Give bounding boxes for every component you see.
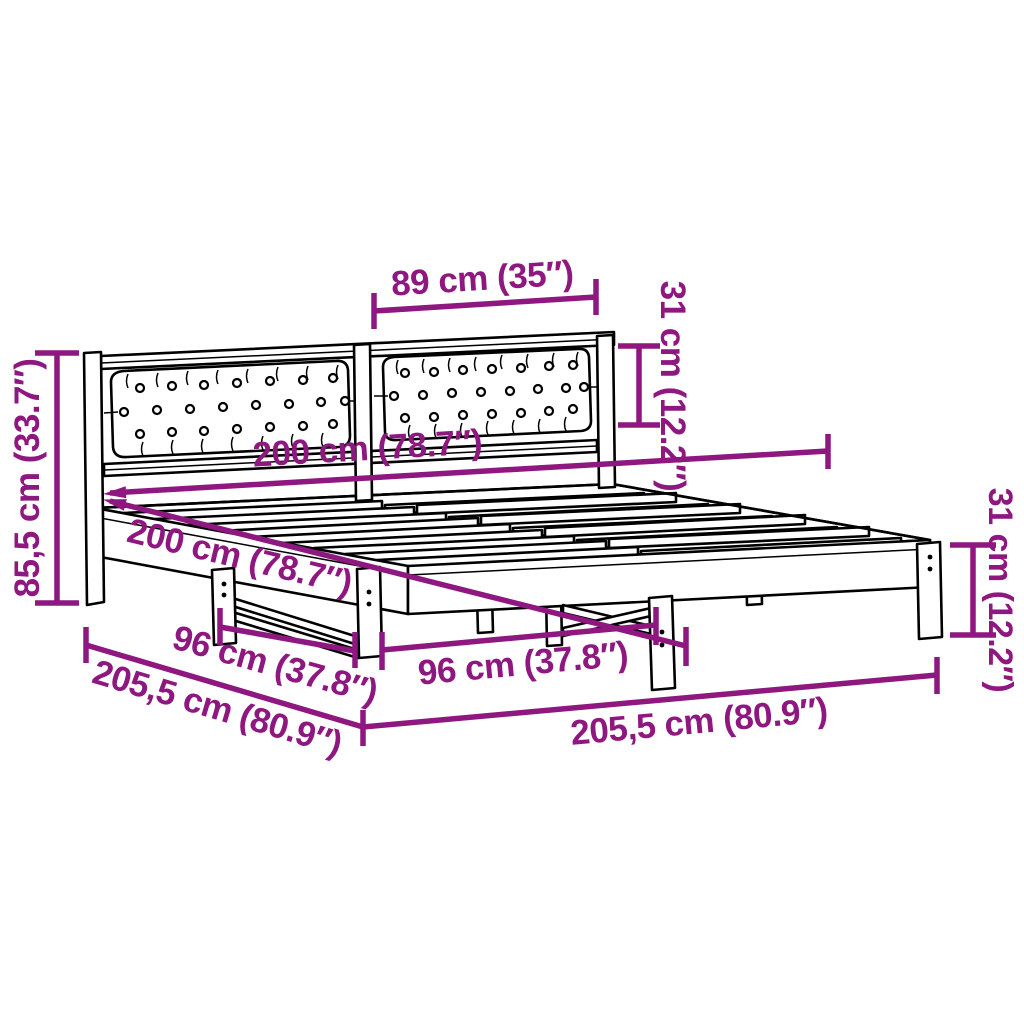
dim-label-frame-height: 31 cm (12.2″) bbox=[981, 488, 1019, 692]
headboard-left-post bbox=[84, 352, 104, 605]
product-dimension-image: 89 cm (35″) 31 cm (12.2″) 85,5 cm (33.7″… bbox=[0, 0, 1024, 1024]
dim-label-headboard-total-height: 85,5 cm (33.7″) bbox=[8, 359, 47, 598]
corner-leg bbox=[357, 567, 382, 658]
diagram-canvas: 89 cm (35″) 31 cm (12.2″) 85,5 cm (33.7″… bbox=[0, 0, 1024, 1024]
